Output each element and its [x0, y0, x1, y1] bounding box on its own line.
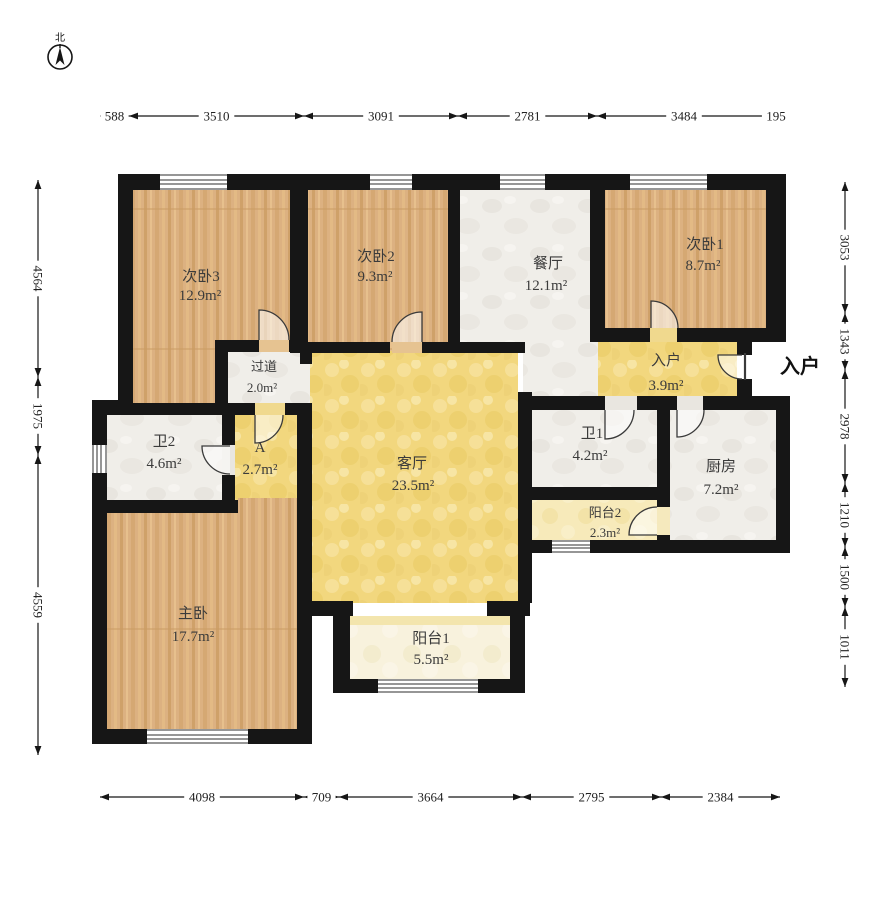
room-label-roomA: A — [255, 440, 266, 456]
dim-right-4: 1500 — [838, 564, 853, 590]
room-label-bed2: 次卧2 — [357, 248, 395, 265]
room-area-kitchen: 7.2m² — [704, 482, 739, 498]
room-label-hallway: 过道 — [251, 359, 277, 374]
dim-bottom-3: 2795 — [579, 790, 605, 805]
room-area-dining: 12.1m² — [525, 278, 568, 294]
dim-right-3: 1210 — [838, 502, 853, 528]
room-balcony1-threshold — [348, 616, 511, 625]
room-master-passage-floor — [238, 498, 298, 515]
floor-plan-page: 北 入户 次卧312.9m²次卧29.3m²餐厅12.1m²次卧18.7m²过道… — [0, 0, 882, 919]
dim-top-4: 3484 — [671, 109, 698, 124]
dim-top-2: 3091 — [368, 109, 394, 124]
room-living-floor — [310, 351, 518, 603]
window-bath2 — [92, 445, 107, 473]
dim-right-1: 1343 — [838, 329, 853, 355]
dim-bottom-1: 709 — [312, 790, 332, 805]
dim-bottom-0: 4098 — [189, 790, 215, 805]
room-area-bed1: 8.7m² — [686, 258, 721, 274]
dimension-bottom: 4098709366427952384 — [100, 789, 780, 805]
entrance-label: 入户 — [780, 354, 820, 378]
dim-right-5: 1011 — [838, 634, 853, 660]
room-area-balcony2: 2.3m² — [590, 525, 620, 540]
room-area-roomA: 2.7m² — [243, 462, 278, 478]
room-area-balcony1: 5.5m² — [414, 652, 449, 668]
room-area-bath2: 4.6m² — [147, 456, 182, 472]
dimension-top: 5883510309127813484195 — [100, 108, 790, 124]
room-label-kitchen: 厨房 — [706, 458, 736, 475]
dim-top-0: 588 — [105, 109, 125, 124]
room-area-living: 23.5m² — [392, 478, 435, 494]
dim-top-1: 3510 — [204, 109, 230, 124]
compass-needle — [56, 47, 65, 65]
room-label-balcony1: 阳台1 — [412, 630, 450, 647]
window-bed1 — [630, 174, 707, 190]
dimension-right: 305313432978121015001011 — [837, 182, 853, 687]
room-label-balcony2: 阳台2 — [589, 505, 622, 520]
room-area-entry: 3.9m² — [649, 378, 684, 394]
room-label-bath1: 卫1 — [581, 426, 604, 442]
room-label-master: 主卧 — [178, 605, 208, 622]
room-master-floor — [105, 513, 298, 731]
compass-north-label: 北 — [55, 32, 65, 44]
north-compass: 北 — [48, 32, 72, 69]
room-balcony1-floor — [348, 616, 511, 680]
floor-plan-drawing: 北 入户 次卧312.9m²次卧29.3m²餐厅12.1m²次卧18.7m²过道… — [0, 0, 882, 919]
room-area-bed3: 12.9m² — [179, 288, 222, 304]
room-area-bath1: 4.2m² — [573, 448, 608, 464]
dim-right-2: 2978 — [838, 414, 853, 440]
room-label-bed1: 次卧1 — [686, 236, 724, 253]
room-label-entry: 入户 — [651, 352, 681, 369]
window-dining — [500, 174, 545, 190]
dim-top-3: 2781 — [515, 109, 541, 124]
dim-bottom-4: 2384 — [708, 790, 735, 805]
dim-bottom-2: 3664 — [418, 790, 445, 805]
dimension-left: 456419754559 — [30, 180, 46, 755]
room-area-bed2: 9.3m² — [358, 269, 393, 285]
window-balcony1 — [378, 679, 478, 693]
window-bed3 — [160, 174, 227, 190]
window-balcony2 — [552, 540, 590, 553]
room-area-hallway: 2.0m² — [247, 380, 277, 395]
dim-left-2: 4559 — [31, 592, 46, 618]
room-label-dining: 餐厅 — [533, 255, 563, 272]
room-area-master: 17.7m² — [172, 629, 215, 645]
window-bed2 — [370, 174, 412, 190]
dim-left-0: 4564 — [31, 266, 46, 293]
dim-right-0: 3053 — [838, 235, 853, 261]
dim-left-1: 1975 — [31, 403, 46, 429]
window-master — [147, 729, 248, 744]
room-label-bath2: 卫2 — [153, 434, 176, 450]
room-label-living: 客厅 — [397, 455, 427, 472]
room-label-bed3: 次卧3 — [182, 268, 220, 285]
dim-top-5: 195 — [766, 109, 786, 124]
